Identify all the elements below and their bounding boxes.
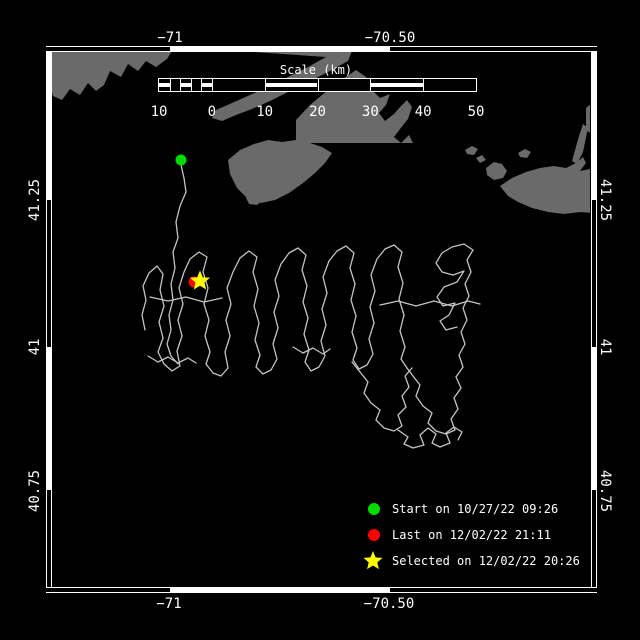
latitude-right-label: 41 <box>597 339 613 356</box>
track-line <box>293 347 330 354</box>
scale-segment <box>201 79 212 91</box>
longitude-bottom-label: −70.50 <box>364 596 415 612</box>
land-polygon <box>476 155 486 163</box>
scale-segment <box>265 79 318 91</box>
track-line <box>167 165 186 364</box>
scale-segment <box>370 79 423 91</box>
land-polygon <box>51 51 172 100</box>
scale-segment <box>212 79 265 91</box>
scale-segment-stripe <box>371 83 423 87</box>
track-map-screen: −71−70.50−71−70.5041.254140.7541.254140.… <box>0 0 640 640</box>
scale-segment-stripe <box>202 83 212 87</box>
legend-marker-0[interactable] <box>368 503 380 515</box>
scale-segment <box>159 79 170 91</box>
scale-segment <box>191 79 202 91</box>
latitude-right-label: 40.75 <box>597 470 613 512</box>
legend-item-0[interactable]: Start on 10/27/22 09:26 <box>392 502 558 516</box>
scale-segment <box>423 79 476 91</box>
legend-item-1[interactable]: Last on 12/02/22 21:11 <box>392 528 551 542</box>
legend-item-2[interactable]: Selected on 12/02/22 20:26 <box>392 554 580 568</box>
scale-tick-label: 10 <box>151 104 168 120</box>
scale-segment <box>318 79 371 91</box>
latitude-left-label: 41 <box>27 339 43 356</box>
legend-marker-2[interactable] <box>364 551 383 569</box>
land-polygon <box>518 149 531 158</box>
track-line <box>407 244 473 434</box>
start-marker[interactable] <box>176 155 187 166</box>
land-polygon <box>465 146 478 155</box>
scale-tick-label: 30 <box>362 104 379 120</box>
land-polygon <box>228 140 332 203</box>
land-polygon <box>586 103 593 135</box>
land-polygon <box>500 157 593 214</box>
scale-segment <box>180 79 191 91</box>
scale-tick-label: 40 <box>415 104 432 120</box>
scale-bar-title: Scale (km) <box>280 63 352 77</box>
scale-tick-label: 0 <box>208 104 216 120</box>
map-canvas[interactable] <box>0 0 640 640</box>
scale-segment-stripe <box>159 83 170 87</box>
longitude-bottom-label: −71 <box>156 596 181 612</box>
latitude-left-label: 40.75 <box>27 470 43 512</box>
scale-tick-label: 10 <box>256 104 273 120</box>
track-line <box>150 297 222 302</box>
track-line <box>398 427 462 448</box>
scale-tick-label: 20 <box>309 104 326 120</box>
longitude-top-label: −71 <box>157 30 182 46</box>
latitude-left-label: 41.25 <box>27 179 43 221</box>
scale-segment-stripe <box>266 83 318 87</box>
track-line <box>142 245 407 376</box>
map-interior <box>51 51 593 569</box>
track-line <box>352 362 412 431</box>
land-polygon <box>572 124 588 164</box>
scale-bar-segments <box>158 78 477 92</box>
land-polygon <box>486 162 507 180</box>
scale-tick-label: 50 <box>468 104 485 120</box>
latitude-right-label: 41.25 <box>597 179 613 221</box>
scale-segment-stripe <box>181 83 191 87</box>
longitude-top-label: −70.50 <box>365 30 416 46</box>
legend-marker-1[interactable] <box>368 529 380 541</box>
scale-segment <box>170 79 181 91</box>
